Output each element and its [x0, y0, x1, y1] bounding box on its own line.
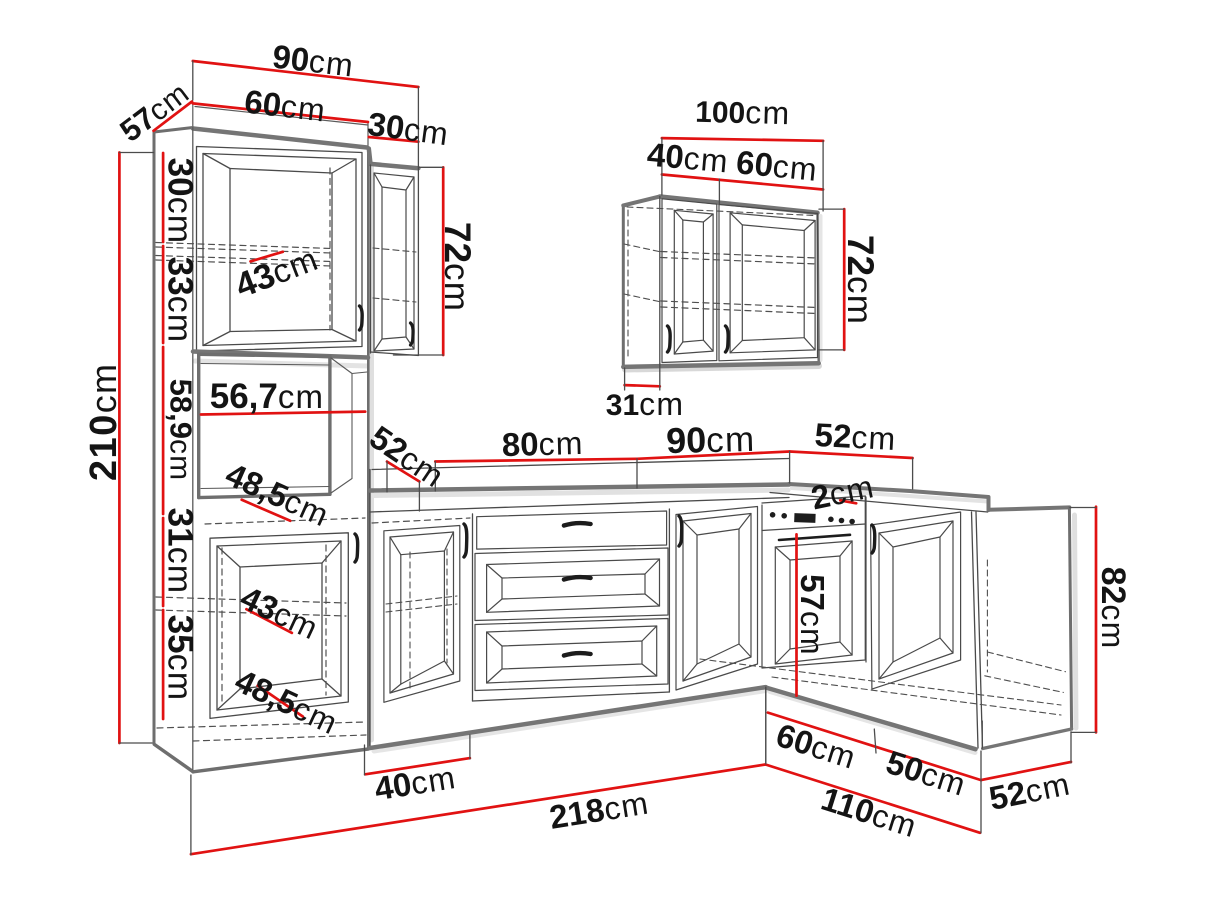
svg-text:72cm: 72cm — [840, 235, 881, 325]
svg-text:35cm: 35cm — [161, 615, 200, 702]
svg-text:57cm: 57cm — [794, 574, 831, 656]
svg-text:82cm: 82cm — [1094, 567, 1132, 650]
svg-text:90cm: 90cm — [666, 418, 756, 461]
svg-text:72cm: 72cm — [437, 222, 478, 312]
svg-text:40cm: 40cm — [646, 136, 731, 180]
svg-text:80cm: 80cm — [501, 424, 584, 463]
svg-text:100cm: 100cm — [695, 93, 791, 131]
svg-text:33cm: 33cm — [161, 257, 200, 344]
svg-text:210cm: 210cm — [83, 363, 125, 481]
svg-text:56,7cm: 56,7cm — [210, 377, 325, 416]
svg-text:58,9cm: 58,9cm — [164, 379, 199, 482]
svg-text:31cm: 31cm — [161, 508, 200, 595]
svg-text:52cm: 52cm — [814, 416, 898, 457]
svg-text:31cm: 31cm — [606, 386, 684, 422]
svg-text:60cm: 60cm — [735, 143, 820, 188]
svg-text:30cm: 30cm — [161, 158, 200, 245]
